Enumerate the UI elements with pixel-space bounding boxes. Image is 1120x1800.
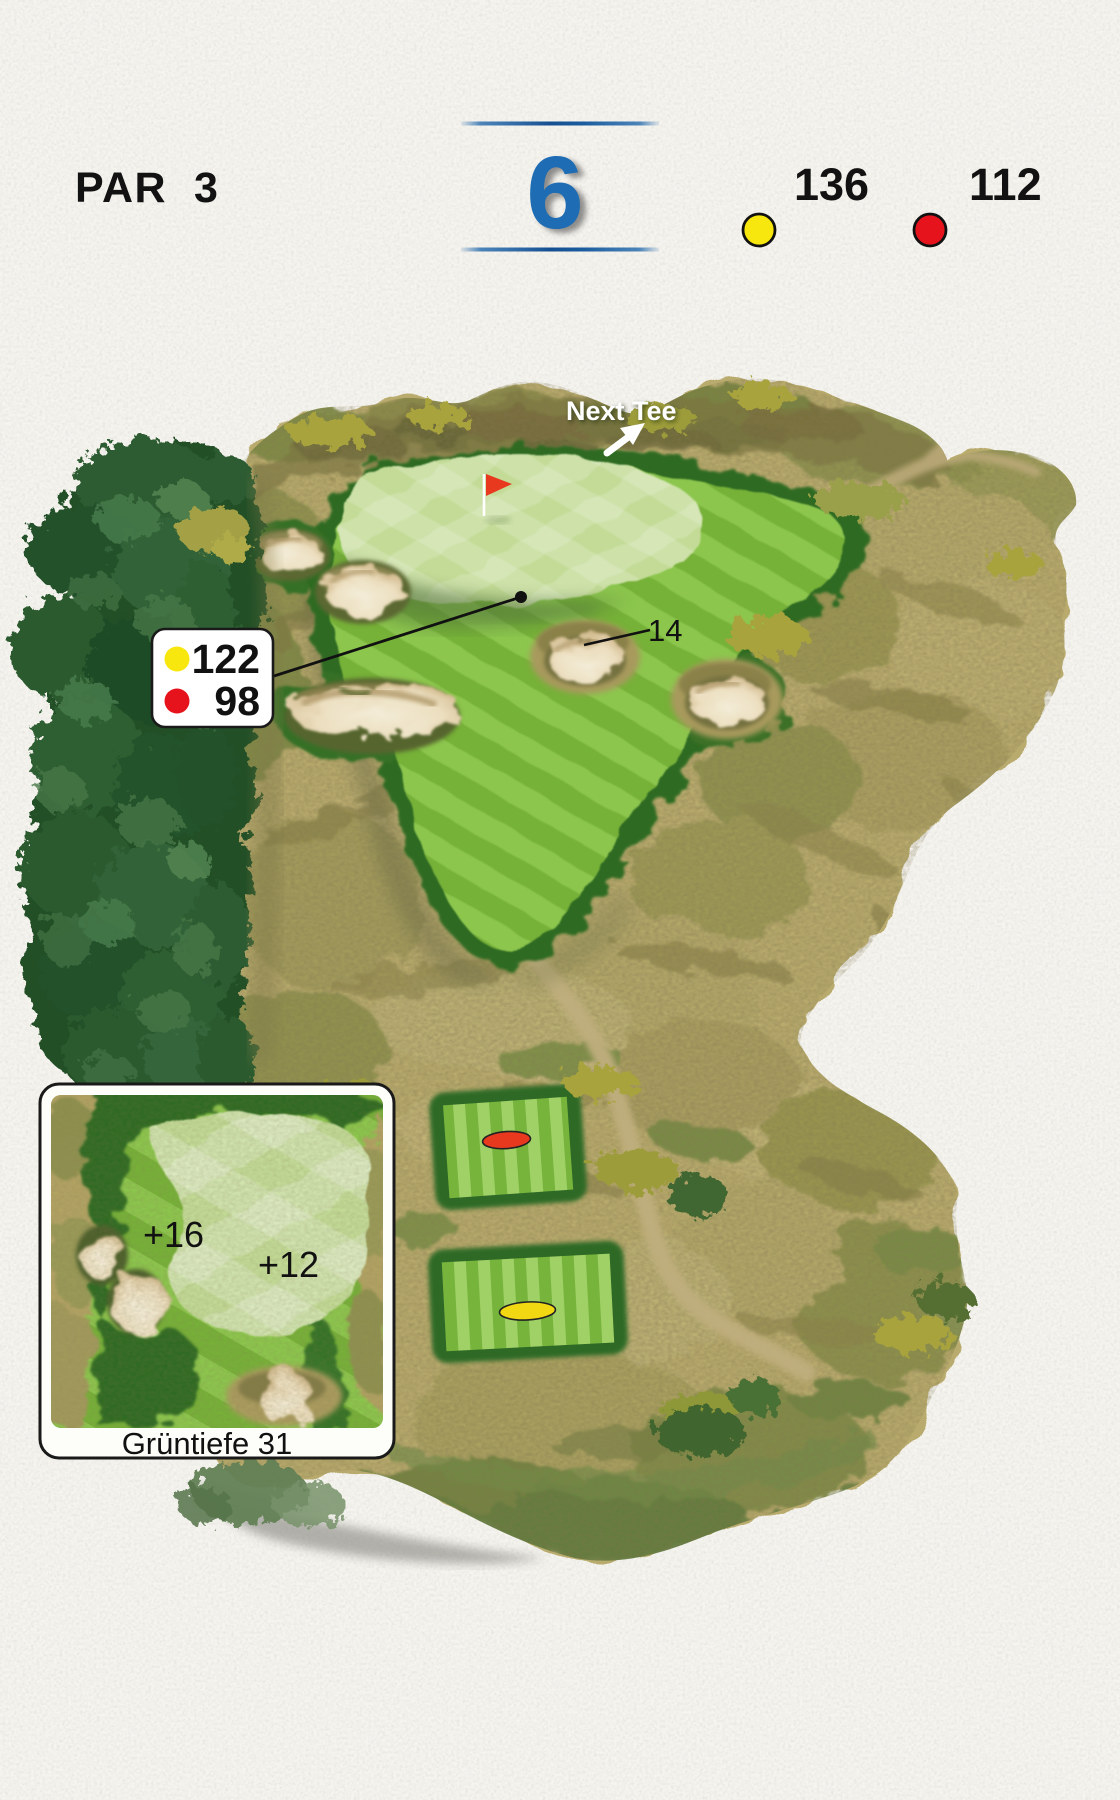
- svg-text:PAR 3: PAR 3: [75, 164, 219, 212]
- svg-text:+16: +16: [143, 1214, 204, 1255]
- svg-text:14: 14: [648, 613, 682, 648]
- svg-text:122: 122: [192, 636, 260, 682]
- svg-text:6: 6: [526, 135, 583, 250]
- svg-text:112: 112: [969, 159, 1042, 210]
- svg-text:Next Tee: Next Tee: [566, 396, 677, 426]
- svg-text:98: 98: [214, 678, 260, 724]
- svg-text:Grüntiefe 31: Grüntiefe 31: [122, 1426, 293, 1461]
- svg-text:136: 136: [794, 159, 869, 210]
- svg-text:+12: +12: [258, 1244, 319, 1285]
